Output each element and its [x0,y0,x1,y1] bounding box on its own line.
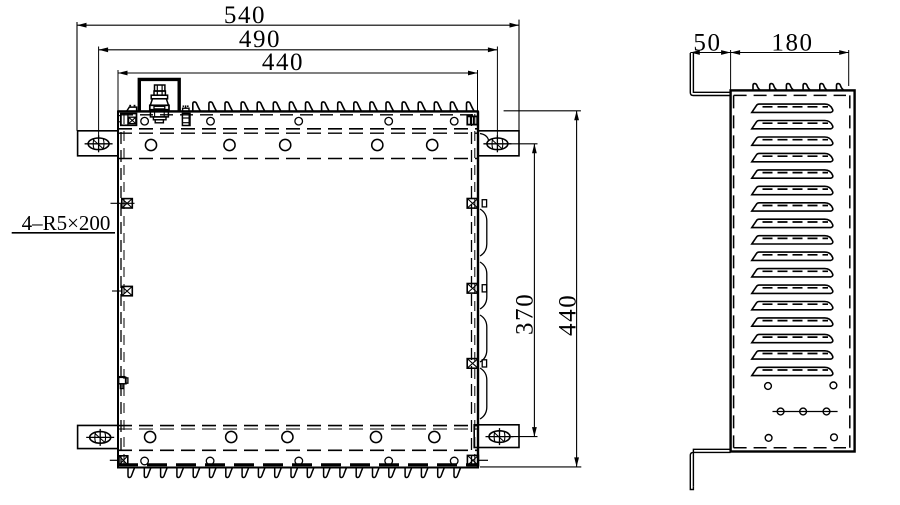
svg-text:180: 180 [771,30,813,57]
svg-text:370: 370 [512,293,539,335]
svg-text:540: 540 [224,2,266,29]
svg-text:50: 50 [693,30,721,57]
svg-text:440: 440 [262,49,304,76]
svg-text:440: 440 [555,294,582,336]
svg-text:4–R5×200: 4–R5×200 [22,211,111,235]
